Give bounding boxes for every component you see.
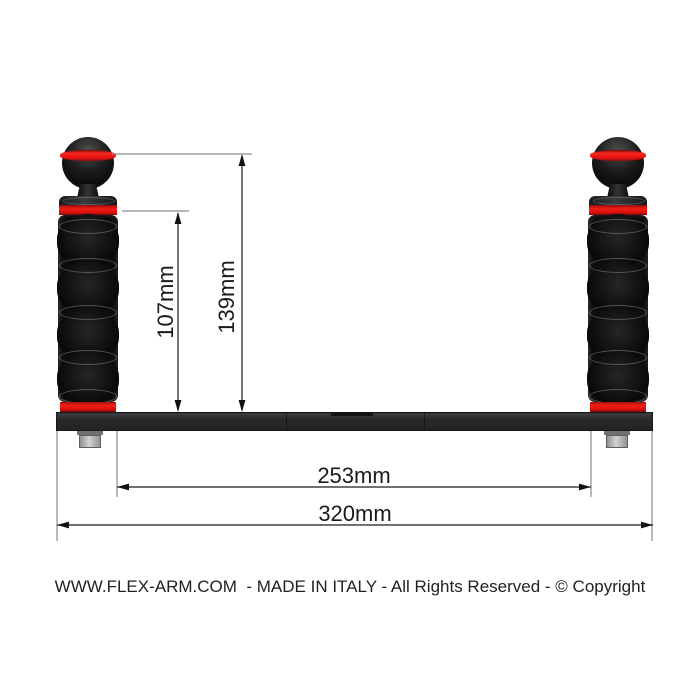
bolt-shank <box>606 435 628 448</box>
arm-ring <box>59 305 117 320</box>
ball-joint-right <box>592 137 644 189</box>
dimension-label-107mm: 107mm <box>155 265 177 338</box>
dimension-label-320mm: 320mm <box>318 503 391 525</box>
arm-ring <box>59 350 117 365</box>
arm-ring <box>589 350 647 365</box>
product-dimension-drawing: 107mm 139mm 253mm 320mm WWW.FLEX-ARM.COM… <box>0 0 700 700</box>
cap-top-edge <box>593 197 645 205</box>
arrowhead-253-right <box>579 484 591 491</box>
dimension-label-253mm: 253mm <box>317 465 390 487</box>
tray-seam <box>286 413 287 430</box>
tray-seam <box>424 413 425 430</box>
left-flex-arm-handle <box>58 137 118 412</box>
arm-ring <box>59 258 117 273</box>
ball-red-band-right <box>590 150 646 161</box>
arrowhead-320-right <box>641 522 653 529</box>
arm-ring <box>589 219 647 234</box>
arm-bottom-red-band-right <box>590 402 646 412</box>
arm-bottom-red-band-left <box>60 402 116 412</box>
arrowhead-253-left <box>117 484 129 491</box>
arrowhead-107-up <box>175 212 182 224</box>
footer-copyright: WWW.FLEX-ARM.COM - MADE IN ITALY - All R… <box>0 577 700 597</box>
ball-red-band-left <box>60 150 116 161</box>
right-flex-arm-handle <box>588 137 648 412</box>
cap-top-edge <box>63 197 115 205</box>
arm-ring <box>59 219 117 234</box>
mounting-bolt-left <box>77 431 103 448</box>
arrowhead-320-left <box>57 522 69 529</box>
bolt-shank <box>79 435 101 448</box>
arrowhead-107-down <box>175 400 182 412</box>
arrowhead-139-down <box>239 400 246 412</box>
ball-joint-left <box>62 137 114 189</box>
tray-slot <box>331 413 373 416</box>
arm-ring <box>589 305 647 320</box>
mounting-bolt-right <box>604 431 630 448</box>
arrowhead-139-up <box>239 154 246 166</box>
dimension-label-139mm: 139mm <box>216 260 238 333</box>
arm-ring <box>589 258 647 273</box>
tray-bar <box>56 412 653 431</box>
